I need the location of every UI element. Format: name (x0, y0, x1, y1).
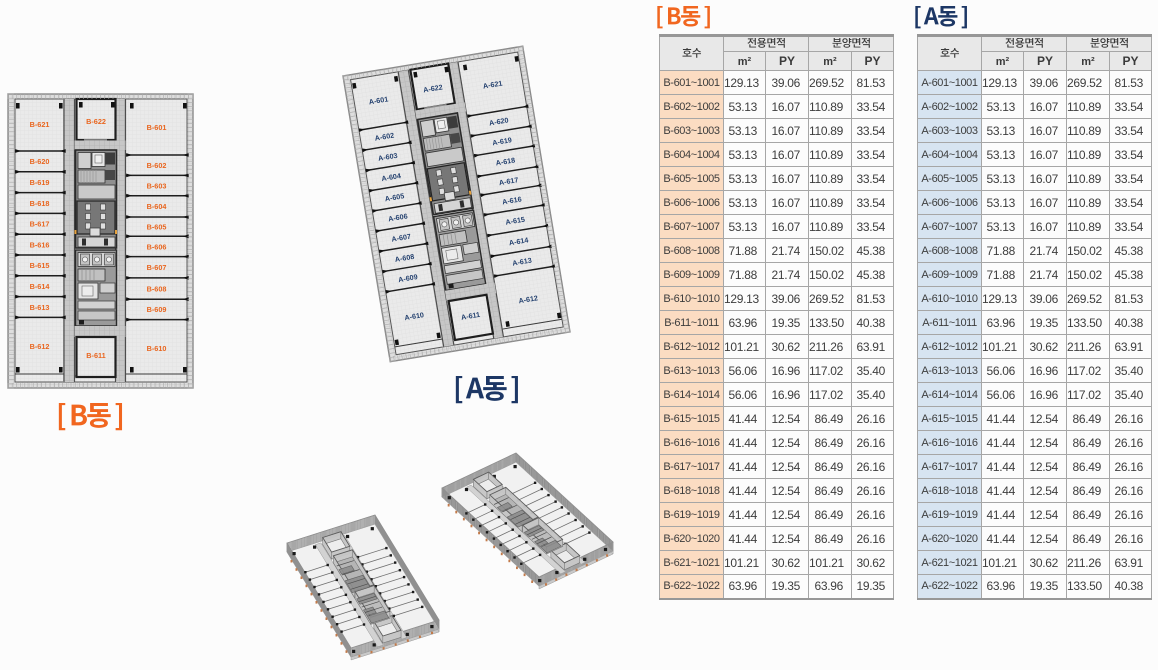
svg-text:B-607: B-607 (147, 263, 167, 272)
svg-text:B-602: B-602 (147, 161, 167, 170)
svg-text:B-611: B-611 (86, 351, 105, 360)
svg-text:B-621: B-621 (30, 120, 50, 129)
svg-text:B-612: B-612 (30, 342, 50, 351)
svg-text:B-608: B-608 (147, 284, 167, 293)
svg-text:B-603: B-603 (147, 181, 167, 190)
svg-text:B-616: B-616 (30, 240, 50, 249)
svg-text:B-610: B-610 (147, 344, 167, 353)
svg-text:B-619: B-619 (30, 178, 50, 187)
svg-text:B-613: B-613 (30, 303, 50, 312)
svg-text:B-618: B-618 (30, 199, 50, 208)
svg-text:B-605: B-605 (147, 222, 167, 231)
svg-text:B-614: B-614 (30, 282, 51, 291)
svg-text:B-604: B-604 (147, 202, 168, 211)
svg-text:B-609: B-609 (147, 305, 167, 314)
svg-text:B-617: B-617 (30, 220, 50, 229)
svg-text:B-622: B-622 (86, 117, 106, 126)
svg-text:B-620: B-620 (30, 157, 50, 166)
svg-text:B-601: B-601 (147, 123, 167, 132)
svg-text:B-606: B-606 (147, 242, 167, 251)
svg-text:B-615: B-615 (30, 261, 50, 270)
